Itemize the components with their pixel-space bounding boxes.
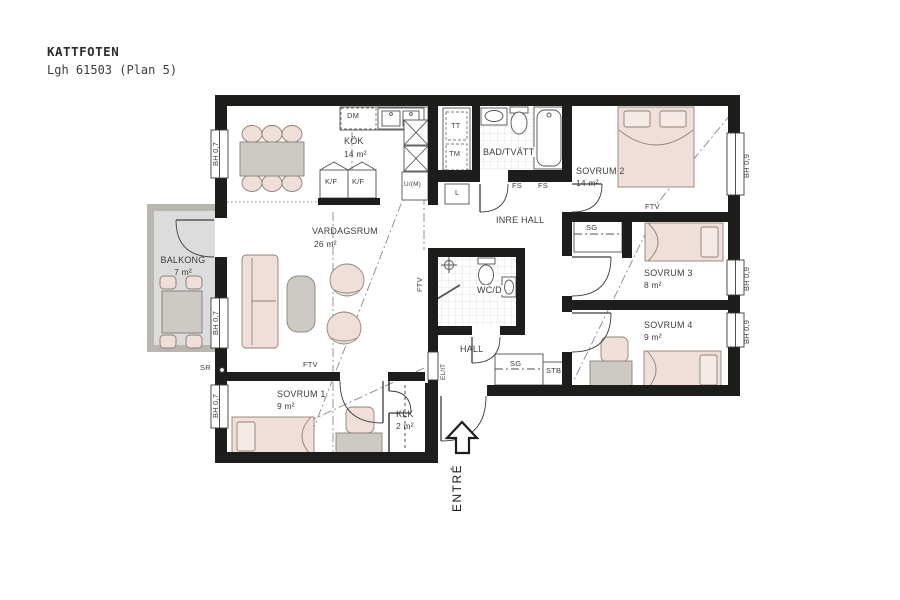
window-label-bh07-1: BH 0,7	[212, 142, 221, 166]
floor-plan-page: KATTFOTEN Lgh 61503 (Plan 5)	[0, 0, 900, 600]
window-label-bh09-2: BH 0,9	[743, 267, 752, 291]
room-area-sovrum4: 9 m²	[644, 333, 662, 343]
balcony-structure	[147, 204, 217, 352]
fixture-label-sr: SR	[200, 364, 211, 373]
room-label-klk: KLK	[396, 409, 414, 419]
bed-sovrum3	[645, 223, 723, 261]
room-label-vardagsrum: VARDAGSRUM	[312, 226, 378, 236]
window-label-bh07-3: BH 0,7	[212, 394, 221, 418]
fixture-label-ftv-sovrum2: FTV	[645, 203, 660, 212]
room-label-inre-hall: INRE HALL	[496, 215, 544, 225]
room-label-balkong: BALKONG	[150, 255, 216, 265]
wc-toilet	[478, 258, 495, 285]
room-label-wc-d: WC/D	[476, 285, 503, 295]
coffee-table	[287, 276, 315, 332]
bathroom-sink	[481, 108, 507, 125]
entrance-label: ENTRÉ	[450, 464, 464, 512]
door-bad-tvatt	[480, 184, 508, 212]
fixture-label-kf-1: K/F	[325, 178, 337, 187]
room-label-hall: HALL	[460, 344, 483, 354]
fixture-label-dm: DM	[347, 112, 359, 121]
room-area-sovrum1: 9 m²	[277, 402, 295, 412]
fixture-label-stb: STB	[546, 367, 561, 376]
el-it-cabinet	[428, 352, 438, 380]
bathtub	[534, 107, 564, 169]
fixture-label-sg-hall: SG	[510, 360, 521, 369]
entrance-arrow-icon	[447, 422, 477, 453]
room-area-vardagsrum: 26 m²	[314, 240, 337, 250]
room-label-kok: KÖK	[344, 136, 364, 146]
room-area-sovrum3: 8 m²	[644, 281, 662, 291]
room-label-sovrum3: SOVRUM 3	[644, 268, 693, 278]
dining-set	[240, 126, 304, 192]
bed-sovrum2	[618, 107, 694, 187]
fixture-label-tt: TT	[451, 122, 461, 131]
fixture-label-kf-2: K/F	[352, 178, 364, 187]
fixture-label-ftv-vardagsrum: FTV	[303, 361, 318, 370]
sr-marker	[220, 368, 225, 373]
room-label-sovrum2: SOVRUM 2	[576, 166, 625, 176]
fixture-label-sg-sovrum2: SG	[586, 224, 597, 233]
fixture-label-fs-2: FS	[538, 182, 548, 191]
door-sovrum3	[572, 257, 611, 296]
fixture-label-fs-1: FS	[512, 182, 522, 191]
window-label-bh07-2: BH 0,7	[212, 311, 221, 335]
desk-sovrum1	[336, 407, 382, 457]
bed-sovrum1	[232, 417, 314, 455]
fixture-label-l: L	[455, 189, 459, 198]
fixture-label-el-it: EL/IT	[440, 364, 447, 380]
room-label-bad-tvatt: BAD/TVÄTT	[482, 147, 535, 157]
fixture-label-ftv-wcd: FTV	[416, 277, 425, 292]
room-label-sovrum1: SOVRUM 1	[277, 389, 326, 399]
fixture-label-tm: TM	[449, 150, 460, 159]
fixture-label-um: U/(M)	[404, 181, 421, 188]
room-area-kok: 14 m²	[344, 150, 367, 160]
window-label-bh09-1: BH 0,9	[743, 154, 752, 178]
sofa	[242, 255, 278, 348]
room-area-balkong: 7 m²	[150, 268, 216, 278]
room-label-sovrum4: SOVRUM 4	[644, 320, 693, 330]
room-area-sovrum2: 14 m²	[576, 179, 599, 189]
wc-sink	[502, 277, 516, 297]
bathroom-toilet	[510, 107, 528, 134]
desk-sovrum4	[590, 337, 632, 388]
room-area-klk: 2 m²	[396, 422, 414, 432]
window-label-bh09-3: BH 0,9	[743, 320, 752, 344]
bed-sovrum4	[644, 351, 721, 389]
